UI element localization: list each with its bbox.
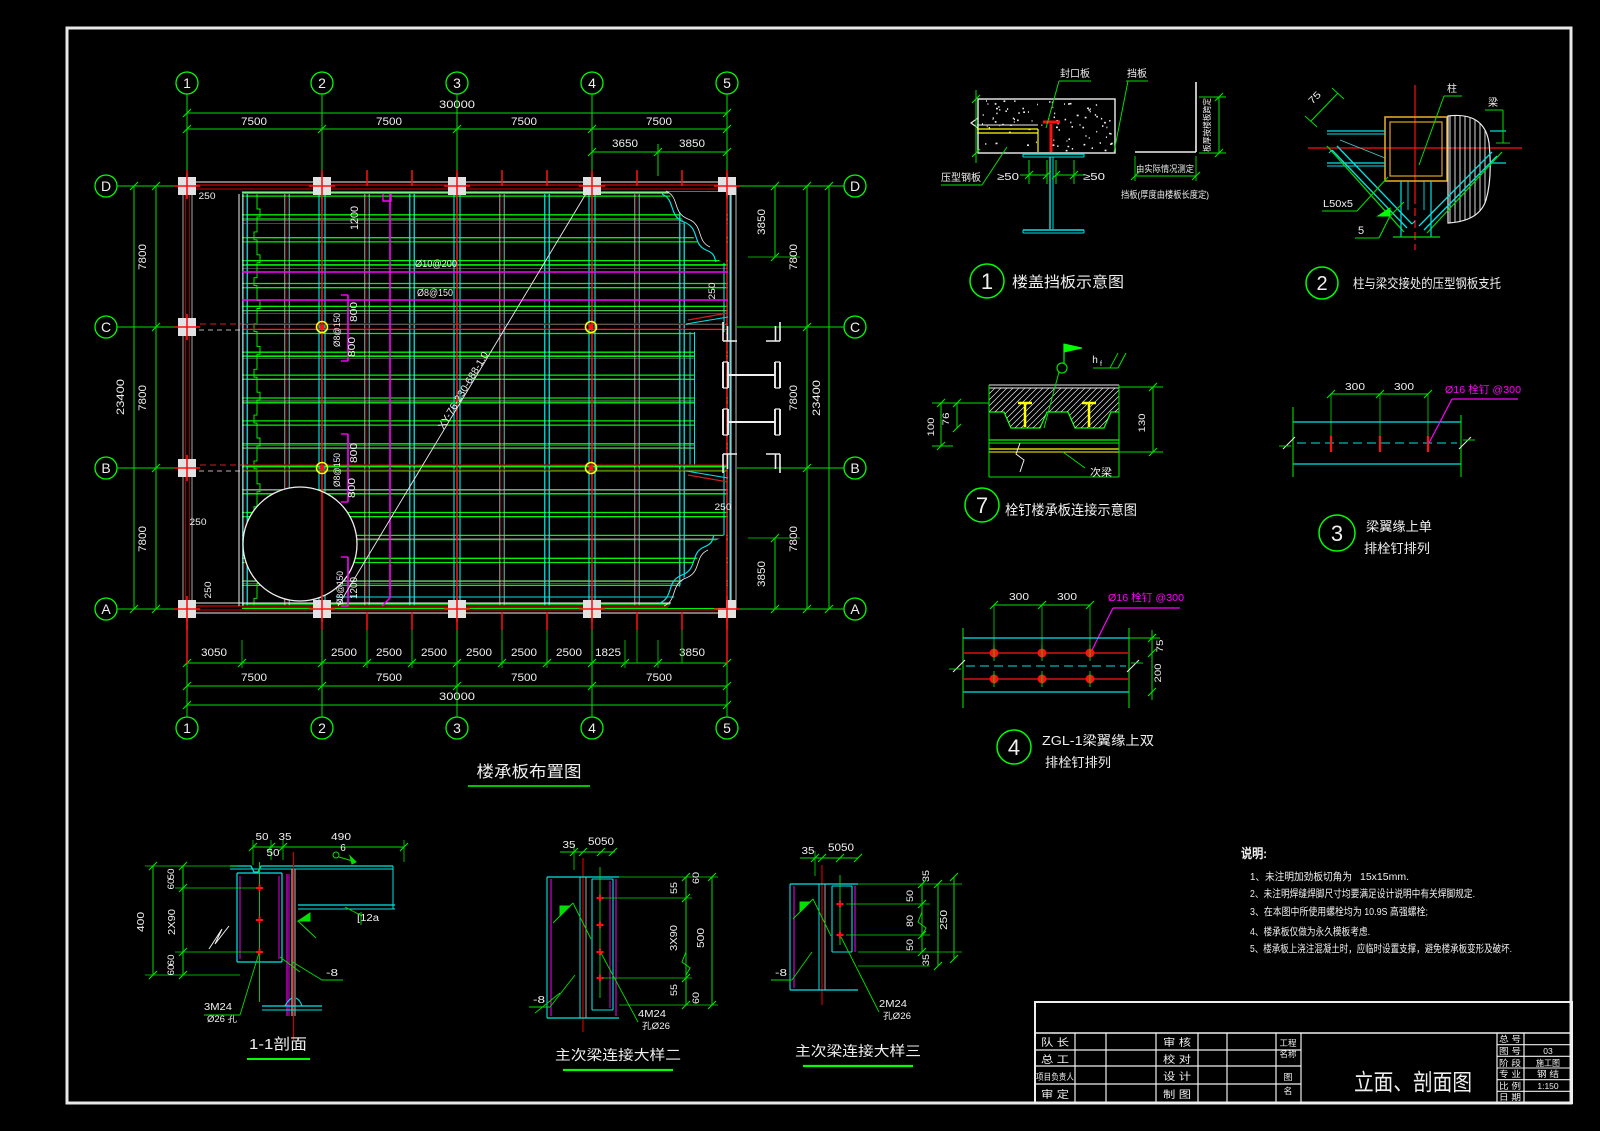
svg-text:2500: 2500 [421, 647, 447, 659]
svg-text:800: 800 [349, 301, 360, 322]
svg-text:施工图: 施工图 [1536, 1058, 1560, 1068]
svg-text:60: 60 [691, 992, 702, 1004]
svg-text:Ø8@150: Ø8@150 [332, 313, 342, 347]
svg-text:名称: 名称 [1280, 1049, 1297, 1059]
svg-text:800: 800 [349, 442, 360, 463]
svg-text:35: 35 [563, 840, 577, 851]
svg-text:日 期: 日 期 [1499, 1092, 1521, 1102]
svg-text:1、未注明加劲板切角为: 1、未注明加劲板切角为 [1250, 870, 1352, 883]
svg-text:楼盖挡板示意图: 楼盖挡板示意图 [1012, 273, 1124, 291]
svg-text:孔Ø26: 孔Ø26 [642, 1021, 670, 1031]
svg-text:60: 60 [166, 955, 176, 966]
svg-text:2500: 2500 [331, 647, 357, 659]
svg-text:30000: 30000 [439, 99, 475, 111]
svg-text:2、未注明焊缝焊脚尺寸均要满足设计说明中有关焊脚规定.: 2、未注明焊缝焊脚尺寸均要满足设计说明中有关焊脚规定. [1250, 887, 1475, 900]
svg-text:7800: 7800 [788, 385, 800, 411]
svg-text:300: 300 [1009, 592, 1030, 603]
svg-text:制 图: 制 图 [1163, 1088, 1191, 1101]
svg-text:250: 250 [199, 191, 216, 201]
svg-text:B: B [101, 460, 110, 476]
svg-text:76: 76 [941, 413, 952, 426]
svg-text:2500: 2500 [466, 647, 492, 659]
svg-text:专 业: 专 业 [1499, 1069, 1521, 1079]
svg-text:300: 300 [1345, 382, 1366, 393]
svg-text:L50x5: L50x5 [1323, 199, 1353, 210]
svg-text:4: 4 [588, 75, 596, 91]
svg-text:2: 2 [318, 75, 326, 91]
svg-text:4: 4 [1008, 735, 1020, 760]
svg-text:设 计: 设 计 [1163, 1070, 1191, 1083]
svg-text:孔Ø26: 孔Ø26 [883, 1011, 911, 1021]
svg-text:≥50: ≥50 [997, 172, 1020, 183]
svg-text:-8: -8 [775, 968, 788, 979]
svg-text:挡板: 挡板 [1127, 67, 1147, 80]
svg-text:队 长: 队 长 [1041, 1036, 1069, 1049]
svg-text:50: 50 [905, 939, 916, 951]
svg-text:梁翼缘上单: 梁翼缘上单 [1366, 519, 1432, 534]
svg-text:Ø8@150: Ø8@150 [417, 287, 453, 299]
svg-text:A: A [850, 601, 860, 617]
svg-text:3850: 3850 [679, 138, 705, 150]
svg-text:80: 80 [905, 915, 916, 927]
svg-text:35: 35 [921, 954, 932, 966]
svg-text:2X90: 2X90 [167, 909, 178, 935]
svg-text:A: A [101, 601, 111, 617]
svg-text:工程: 工程 [1280, 1038, 1297, 1048]
svg-text:7500: 7500 [646, 116, 672, 128]
svg-text:30000: 30000 [439, 691, 475, 703]
svg-text:由实际情况测定: 由实际情况测定 [1136, 163, 1194, 174]
svg-text:100: 100 [926, 418, 937, 437]
svg-text:1: 1 [183, 720, 191, 736]
svg-text:审 核: 审 核 [1163, 1036, 1191, 1049]
svg-text:f: f [1100, 361, 1102, 368]
svg-text:35: 35 [802, 846, 816, 857]
svg-text:≥50: ≥50 [1083, 172, 1106, 183]
svg-text:23400: 23400 [811, 380, 823, 416]
svg-text:图 号: 图 号 [1499, 1046, 1521, 1056]
svg-text:800: 800 [347, 477, 358, 498]
svg-text:C: C [850, 319, 860, 335]
svg-text:130: 130 [1137, 414, 1148, 433]
svg-text:500: 500 [696, 927, 707, 948]
svg-text:Ø8@150: Ø8@150 [332, 453, 342, 487]
svg-text:栓钉楼承板连接示意图: 栓钉楼承板连接示意图 [1005, 502, 1137, 518]
svg-text:400: 400 [136, 911, 147, 932]
svg-text:50: 50 [166, 869, 176, 880]
svg-text:排栓钉排列: 排栓钉排列 [1045, 755, 1111, 770]
svg-text:2: 2 [318, 720, 326, 736]
svg-text:55: 55 [669, 984, 680, 996]
svg-text:总 工: 总 工 [1041, 1053, 1069, 1066]
svg-text:50: 50 [256, 832, 270, 843]
svg-text:Ø8@150: Ø8@150 [335, 571, 345, 605]
svg-text:50: 50 [905, 890, 916, 902]
svg-text:7500: 7500 [511, 116, 537, 128]
svg-text:封口板: 封口板 [1060, 67, 1090, 80]
svg-text:压型钢板: 压型钢板 [941, 171, 981, 184]
svg-text:2500: 2500 [556, 647, 582, 659]
svg-text:D: D [850, 178, 860, 194]
svg-text:35: 35 [279, 832, 293, 843]
svg-text:3850: 3850 [756, 561, 768, 587]
svg-text:Ø26 孔: Ø26 孔 [207, 1014, 237, 1024]
svg-text:钢 结: 钢 结 [1537, 1069, 1559, 1079]
svg-text:比 例: 比 例 [1499, 1081, 1521, 1091]
svg-text:490: 490 [331, 832, 352, 843]
svg-text:7500: 7500 [646, 672, 672, 684]
svg-text:B: B [850, 460, 859, 476]
svg-text:总 号: 总 号 [1499, 1034, 1521, 1044]
svg-text:7500: 7500 [241, 116, 267, 128]
svg-text:1200: 1200 [349, 577, 360, 599]
svg-text:7500: 7500 [376, 116, 402, 128]
svg-text:15x15mm.: 15x15mm. [1360, 871, 1409, 883]
svg-text:35: 35 [921, 870, 932, 882]
svg-text:2: 2 [1316, 273, 1327, 295]
svg-text:5050: 5050 [828, 842, 854, 854]
svg-text:1-1剖面: 1-1剖面 [249, 1036, 307, 1053]
svg-text:250: 250 [715, 502, 732, 512]
svg-text:2500: 2500 [511, 647, 537, 659]
svg-text:3、在本图中所使用螺栓均为 10.9S 高强螺栓;: 3、在本图中所使用螺栓均为 10.9S 高强螺栓; [1250, 905, 1428, 918]
svg-text:60: 60 [166, 879, 176, 890]
svg-text:7800: 7800 [137, 385, 149, 411]
svg-text:7: 7 [976, 493, 988, 518]
svg-text:7500: 7500 [376, 672, 402, 684]
svg-text:1825: 1825 [595, 647, 621, 659]
svg-text:250: 250 [203, 582, 213, 599]
svg-text:4M24: 4M24 [638, 1009, 666, 1020]
svg-text:7500: 7500 [511, 672, 537, 684]
svg-text:6: 6 [340, 843, 346, 854]
svg-text:说明:: 说明: [1241, 846, 1267, 861]
svg-text:C: C [101, 319, 111, 335]
svg-text:校 对: 校 对 [1163, 1053, 1191, 1066]
svg-text:60: 60 [691, 872, 702, 884]
svg-text:挡板(厚度由楼板长度定): 挡板(厚度由楼板长度定) [1121, 189, 1209, 201]
svg-text:7800: 7800 [788, 526, 800, 552]
svg-text:3M24: 3M24 [204, 1002, 232, 1013]
svg-text:3X90: 3X90 [669, 925, 680, 951]
svg-text:5: 5 [1358, 225, 1364, 237]
svg-text:柱与梁交接处的压型钢板支托: 柱与梁交接处的压型钢板支托 [1353, 276, 1501, 291]
svg-text:立面、剖面图: 立面、剖面图 [1354, 1069, 1472, 1095]
svg-text:3: 3 [1331, 521, 1343, 546]
svg-text:h: h [1092, 355, 1098, 366]
svg-text:板厚按楼板跨定: 板厚按楼板跨定 [1202, 98, 1212, 152]
svg-text:阶 段: 阶 段 [1499, 1058, 1522, 1068]
svg-text:7800: 7800 [137, 244, 149, 270]
svg-text:项目负责人: 项目负责人 [1036, 1071, 1074, 1082]
svg-text:50: 50 [267, 848, 281, 859]
svg-text:审 定: 审 定 [1041, 1088, 1069, 1101]
svg-text:楼承板布置图: 楼承板布置图 [477, 763, 582, 781]
svg-text:Ø10@200: Ø10@200 [415, 258, 457, 270]
svg-text:3650: 3650 [612, 138, 638, 150]
svg-text:3: 3 [453, 75, 461, 91]
svg-text:次梁: 次梁 [1090, 466, 1112, 479]
svg-text:1: 1 [183, 75, 191, 91]
svg-text:图: 图 [1284, 1072, 1293, 1082]
svg-text:1:150: 1:150 [1537, 1081, 1559, 1091]
svg-text:200: 200 [1153, 664, 1164, 683]
svg-text:300: 300 [1057, 592, 1078, 603]
svg-text:主次梁连接大样三: 主次梁连接大样三 [795, 1043, 921, 1059]
svg-text:梁: 梁 [1488, 96, 1498, 109]
svg-text:250: 250 [939, 909, 950, 930]
svg-text:名: 名 [1284, 1086, 1293, 1096]
svg-text:5050: 5050 [588, 836, 614, 848]
svg-text:ZGL-1梁翼缘上双: ZGL-1梁翼缘上双 [1042, 733, 1154, 748]
svg-text:7800: 7800 [137, 526, 149, 552]
svg-text:5: 5 [723, 75, 731, 91]
svg-text:D: D [101, 178, 111, 194]
svg-text:3050: 3050 [201, 647, 227, 659]
svg-text:-8: -8 [326, 968, 339, 979]
svg-text:排栓钉排列: 排栓钉排列 [1364, 541, 1430, 556]
svg-text:4、楼承板仅做为永久模板考虑.: 4、楼承板仅做为永久模板考虑. [1250, 925, 1370, 938]
svg-text:250: 250 [707, 283, 717, 300]
svg-text:Ø16 栓钉 @300: Ø16 栓钉 @300 [1445, 383, 1521, 396]
svg-text:3850: 3850 [756, 209, 768, 235]
svg-text:7800: 7800 [788, 244, 800, 270]
svg-text:23400: 23400 [115, 379, 127, 415]
svg-text:主次梁连接大样二: 主次梁连接大样二 [555, 1047, 681, 1063]
svg-text:5、楼承板上浇注混凝土时，应临时设置支撑，避免楼承板变形及破: 5、楼承板上浇注混凝土时，应临时设置支撑，避免楼承板变形及破坏. [1250, 942, 1512, 955]
svg-text:55: 55 [669, 882, 680, 894]
svg-text:2500: 2500 [376, 647, 402, 659]
svg-text:柱: 柱 [1447, 82, 1457, 95]
svg-text:250: 250 [190, 517, 207, 527]
svg-text:2M24: 2M24 [879, 999, 907, 1010]
svg-text:3850: 3850 [679, 647, 705, 659]
svg-text:75: 75 [1155, 640, 1166, 653]
svg-text:300: 300 [1394, 382, 1415, 393]
svg-text:Ø16 栓钉 @300: Ø16 栓钉 @300 [1108, 591, 1184, 604]
svg-text:03: 03 [1543, 1046, 1553, 1056]
svg-text:3: 3 [453, 720, 461, 736]
svg-text:1200: 1200 [349, 206, 361, 230]
svg-text:5: 5 [723, 720, 731, 736]
svg-text:-8: -8 [533, 995, 546, 1006]
svg-text:60: 60 [166, 965, 176, 976]
svg-text:1: 1 [981, 269, 993, 294]
svg-text:800: 800 [347, 336, 358, 357]
svg-text:7500: 7500 [241, 672, 267, 684]
svg-text:4: 4 [588, 720, 596, 736]
